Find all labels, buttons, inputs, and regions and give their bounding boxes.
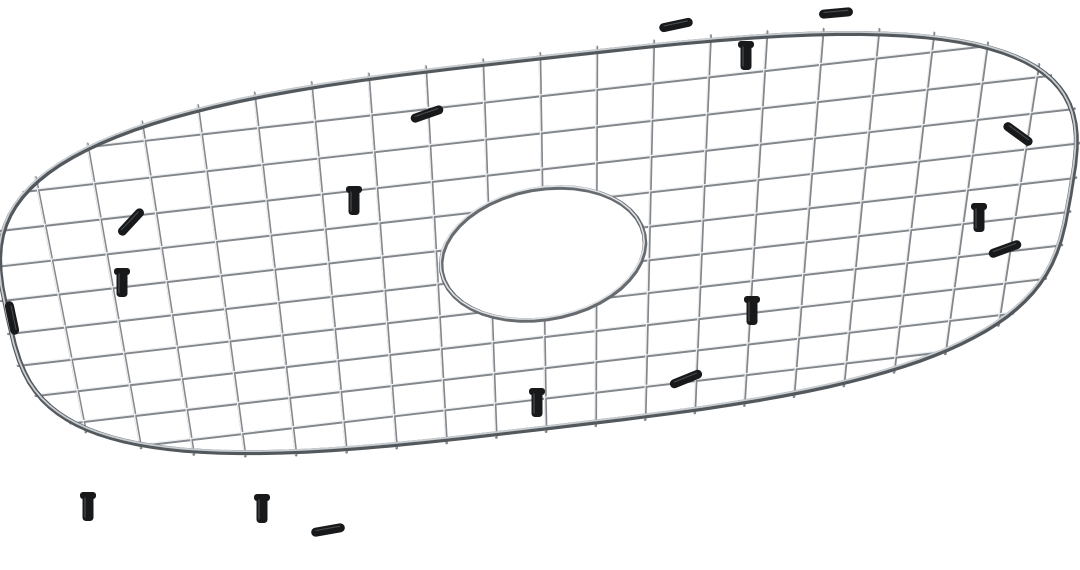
page	[0, 0, 1080, 570]
rubber-foot-clip	[529, 388, 545, 417]
rubber-bumper-sleeve	[116, 206, 146, 237]
rubber-foot-clip	[80, 492, 96, 521]
rubber-feet	[4, 7, 1034, 537]
rubber-foot-clip	[346, 186, 362, 215]
rubber-bumper-sleeve	[310, 523, 345, 538]
rubber-foot-clip	[971, 203, 987, 232]
rubber-bumper-sleeve	[658, 17, 693, 33]
rubber-foot-clip	[738, 41, 754, 70]
drain-opening-ring-highlight	[440, 186, 644, 319]
sink-grid-illustration	[0, 0, 1080, 570]
rubber-foot-clip	[114, 268, 130, 297]
rubber-bumper-sleeve	[819, 7, 854, 19]
rubber-foot-clip	[254, 494, 270, 523]
drain-opening-ring	[441, 187, 645, 320]
rubber-bumper-sleeve	[987, 239, 1022, 259]
product-photo	[0, 0, 1080, 570]
